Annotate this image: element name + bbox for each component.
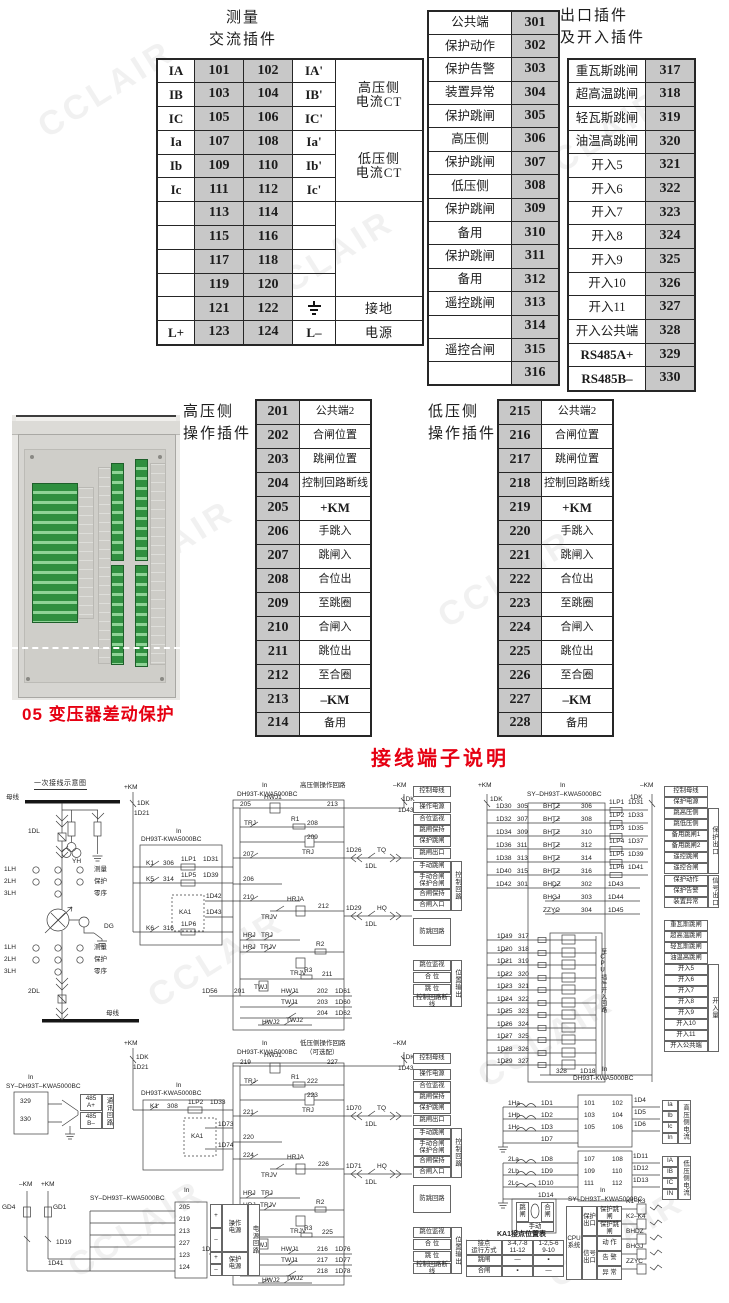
table-cell [157,226,195,250]
table-cell: 114 [244,202,293,226]
table-row: 保护跳闸311 [428,245,559,268]
table-row: 高压侧306 [428,128,559,151]
table-cell: 备用 [542,712,614,736]
table-cell: 318 [646,83,696,107]
table-row: 开入10326 [568,272,695,296]
table-cell: 111 [195,178,244,202]
table-cell: 212 [256,664,300,688]
table-cell: 326 [646,272,696,296]
table-cell: 228 [498,712,542,736]
table-row: 121122接地 [157,297,423,321]
table-cell: 跳位出 [300,640,372,664]
table-cell: 319 [646,106,696,130]
table-row: 215公共端2 [498,400,613,424]
table-row: 216合闸位置 [498,424,613,448]
table-cell: 开入7 [568,201,646,225]
table-cell: IA' [293,59,336,83]
table-cell: 219 [498,496,542,520]
table-cell [293,249,336,273]
table-row: 保护告警303 [428,58,559,81]
table-cell [157,297,195,321]
table-cell: 重瓦斯跳闸 [568,59,646,83]
table-cell: 控制回路断线 [542,472,614,496]
table-cell: 113 [195,202,244,226]
terminal-label-strip [150,463,166,665]
table-cell [293,273,336,297]
table-cell: 112 [244,178,293,202]
lv-plug-title: 低压侧 操作插件 [428,402,506,446]
table-cell: 305 [512,105,560,128]
table-cell: 225 [498,640,542,664]
table-cell: 轻瓦斯跳闸 [568,106,646,130]
table-cell: 至合圈 [542,664,614,688]
terminal-block-large [32,483,78,623]
table-cell: 合位出 [542,568,614,592]
table-cell: 321 [646,154,696,178]
table-row: 203跳闸位置 [256,448,371,472]
table-cell: 306 [512,128,560,151]
table-cell: 保护告警 [428,58,512,81]
lv-operation-plug-table: 215公共端2216合闸位置217跳闸位置218控制回路断线219+KM220手… [497,399,614,737]
table-cell: 120 [244,273,293,297]
table-cell: 121 [195,297,244,321]
table-cell: 215 [498,400,542,424]
table-row: 208合位出 [256,568,371,592]
table-cell: –KM [300,688,372,712]
table-row: 保护跳闸307 [428,151,559,174]
table-cell: 206 [256,520,300,544]
table-cell: 108 [244,130,293,154]
table-cell: 合闸位置 [542,424,614,448]
group-cell: 低压侧 电流CT [336,130,424,201]
table-cell: 备用 [428,268,512,291]
screw [30,455,34,459]
table-cell: 开入9 [568,249,646,273]
table-cell: 210 [256,616,300,640]
table-cell: 合闸入 [542,616,614,640]
hv-operation-plug-table: 201公共端2202合闸位置203跳闸位置204控制回路断线205+KM206手… [255,399,372,737]
table-row: 221跳闸入 [498,544,613,568]
terminal-strip-4 [135,565,148,667]
table-cell: 公共端2 [542,400,614,424]
table-cell: 209 [256,592,300,616]
table-row: 223至跳圈 [498,592,613,616]
table-cell: 110 [244,154,293,178]
table-row: 开入8324 [568,225,695,249]
table-row: 207跳闸入 [256,544,371,568]
table-cell: 104 [244,83,293,107]
table-cell: 320 [646,130,696,154]
table-row: 遥控合闸315 [428,338,559,361]
table-cell: 超高温跳闸 [568,83,646,107]
table-cell: 302 [512,34,560,57]
hv-plug-title: 高压侧 操作插件 [183,402,261,446]
ground-icon [307,301,321,314]
table-cell: 202 [256,424,300,448]
table-row: 202合闸位置 [256,424,371,448]
table-row: 213–KM [256,688,371,712]
table-cell: 开入10 [568,272,646,296]
device-flange [12,421,180,435]
table-cell: 213 [256,688,300,712]
table-cell [157,273,195,297]
table-cell: 221 [498,544,542,568]
table-row: 开入7323 [568,201,695,225]
table-cell: Ic' [293,178,336,202]
table-cell: 118 [244,249,293,273]
terminal-table: 201公共端2202合闸位置203跳闸位置204控制回路断线205+KM206手… [255,399,372,737]
outlet-table-title: 出口插件 及开入插件 [560,6,680,50]
table-cell: 227 [498,688,542,712]
table-row: 225跳位出 [498,640,613,664]
table-row: 210合闸入 [256,616,371,640]
group-cell: 电源 [336,321,424,345]
table-cell: IC' [293,107,336,131]
table-cell: 324 [646,225,696,249]
table-cell: 214 [256,712,300,736]
table-cell: 204 [256,472,300,496]
table-cell: 218 [498,472,542,496]
table-cell: +KM [300,496,372,520]
table-cell [428,362,512,385]
table-row: 保护跳闸305 [428,105,559,128]
table-row: 备用310 [428,222,559,245]
table-cell: 315 [512,338,560,361]
table-row: 轻瓦斯跳闸319 [568,106,695,130]
table-row: 218控制回路断线 [498,472,613,496]
table-row: RS485B–330 [568,367,695,391]
table-row: 204控制回路断线 [256,472,371,496]
table-cell: 合闸入 [300,616,372,640]
table-cell: IC [157,107,195,131]
table-cell: 高压侧 [428,128,512,151]
table-cell [293,202,336,226]
table-cell: 备用 [428,222,512,245]
terminal-label-strip [78,487,94,619]
group-cell: 接地 [336,297,424,321]
page: { "watermark": "CCLAIR", "colors": {"acc… [0,0,729,1298]
screw [158,455,162,459]
table-cell: RS485B– [568,367,646,391]
terminal-label-strip [98,467,111,664]
diagram-title: 接线端子说明 [371,742,509,771]
table-row: 遥控跳闸313 [428,292,559,315]
table-row: 保护动作302 [428,34,559,57]
table-cell: 油温高跳闸 [568,130,646,154]
table-cell: IA [157,59,195,83]
table-row: 201公共端2 [256,400,371,424]
terminal-table: 重瓦斯跳闸317超高温跳闸318轻瓦斯跳闸319油温高跳闸320开入5321开入… [567,58,696,392]
wiring-diagram-svg [0,770,729,1298]
table-cell: 330 [646,367,696,391]
table-cell: 公共端 [428,11,512,34]
table-cell: 合闸位置 [300,424,372,448]
table-cell: 216 [498,424,542,448]
table-cell: 201 [256,400,300,424]
measure-ac-table: IA101102IA'高压侧 电流CTIB103104IB'IC105106IC… [156,58,424,346]
table-cell: 223 [498,592,542,616]
table-row: 217跳闸位置 [498,448,613,472]
table-cell: 跳闸入 [300,544,372,568]
table-cell: 309 [512,198,560,221]
table-row: 公共端301 [428,11,559,34]
terminal-table: 215公共端2216合闸位置217跳闸位置218控制回路断线219+KM220手… [497,399,614,737]
table-cell: 119 [195,273,244,297]
screw [26,677,30,681]
table-cell: 备用 [300,712,372,736]
table-cell: 跳闸入 [542,544,614,568]
table-cell: 310 [512,222,560,245]
table-cell: 303 [512,58,560,81]
table-cell: 322 [646,177,696,201]
table-cell: 遥控合闸 [428,338,512,361]
table-cell: Ic [157,178,195,202]
table-cell: 保护跳闸 [428,151,512,174]
table-cell: 203 [256,448,300,472]
table-cell: 323 [646,201,696,225]
table-cell [157,249,195,273]
table-cell: 106 [244,107,293,131]
table-cell: 307 [512,151,560,174]
table-cell: 至跳圈 [542,592,614,616]
table-cell: 308 [512,175,560,198]
table-cell: 至合圈 [300,664,372,688]
table-row: 226至合圈 [498,664,613,688]
table-cell: 控制回路断线 [300,472,372,496]
terminal-table: IA101102IA'高压侧 电流CTIB103104IB'IC105106IC… [156,58,424,346]
table-row: 备用312 [428,268,559,291]
table-cell: 低压侧 [428,175,512,198]
table-cell: 手跳入 [542,520,614,544]
table-row: 装置异常304 [428,81,559,104]
table-cell: 304 [512,81,560,104]
table-cell: +KM [542,496,614,520]
table-row: 开入6322 [568,177,695,201]
table-cell: 207 [256,544,300,568]
table-cell: 205 [256,496,300,520]
table-cell: 102 [244,59,293,83]
table-cell: 123 [195,321,244,345]
table-cell: 103 [195,83,244,107]
table-row: 214备用 [256,712,371,736]
table-cell: L– [293,321,336,345]
table-row: Ia107108Ia'低压侧 电流CT [157,130,423,154]
wiring-diagram: 一次接线示意图母线1DLYH1LH2LH3LH测量保护零序DG1LH2LH3LH… [0,770,729,1298]
table-cell: 开入公共端 [568,320,646,344]
table-cell: 301 [512,11,560,34]
table-cell: –KM [542,688,614,712]
table-row: 212至合圈 [256,664,371,688]
table-cell: 311 [512,245,560,268]
table-cell: 329 [646,343,696,367]
table-cell: 314 [512,315,560,338]
table-cell: Ib' [293,154,336,178]
table-cell: 122 [244,297,293,321]
table-cell: 开入11 [568,296,646,320]
table-cell: 109 [195,154,244,178]
ground-icon [293,297,336,321]
table-cell: 224 [498,616,542,640]
table-row: L+123124L–电源 [157,321,423,345]
terminal-strip-2 [111,565,124,665]
table-cell: Ib [157,154,195,178]
device-caption: 05 变压器差动保护 [22,700,175,725]
table-row: 220手跳入 [498,520,613,544]
table-cell: 遥控跳闸 [428,292,512,315]
table-row: 314 [428,315,559,338]
table-row: 超高温跳闸318 [568,83,695,107]
table-cell: 226 [498,664,542,688]
table-row: 保护跳闸309 [428,198,559,221]
table-row: 开入公共端328 [568,320,695,344]
group-cell [336,202,424,297]
table-row: 227–KM [498,688,613,712]
table-cell: 107 [195,130,244,154]
table-cell: 保护跳闸 [428,105,512,128]
table-cell: 开入6 [568,177,646,201]
table-row: 211跳位出 [256,640,371,664]
table-row: 209至跳圈 [256,592,371,616]
table-cell: 312 [512,268,560,291]
table-cell: 公共端2 [300,400,372,424]
table-cell: 合位出 [300,568,372,592]
table-cell: 跳闸位置 [300,448,372,472]
table-cell: Ia' [293,130,336,154]
table-cell: IB [157,83,195,107]
table-cell: 手跳入 [300,520,372,544]
table-cell: 保护跳闸 [428,198,512,221]
table-cell: 124 [244,321,293,345]
table-cell: 跳闸位置 [542,448,614,472]
table-row: 316 [428,362,559,385]
table-row: 低压侧308 [428,175,559,198]
table-cell: 328 [646,320,696,344]
table-cell: 保护跳闸 [428,245,512,268]
table-cell: 208 [256,568,300,592]
table-cell: 116 [244,226,293,250]
terminal-strip-3 [135,459,148,561]
table-row: 开入9325 [568,249,695,273]
table-row: 228备用 [498,712,613,736]
table-cell: 220 [498,520,542,544]
table-row: 113114 [157,202,423,226]
table-row: 222合位出 [498,568,613,592]
table-cell: 115 [195,226,244,250]
table-cell: 101 [195,59,244,83]
table-cell: 保护动作 [428,34,512,57]
table-row: 油温高跳闸320 [568,130,695,154]
table-cell: 117 [195,249,244,273]
group-cell: 高压侧 电流CT [336,59,424,130]
photo-dashed-line [12,647,180,649]
screw [160,677,164,681]
table-cell [157,202,195,226]
terminal-strip-1 [111,463,124,561]
table-cell: 至跳圈 [300,592,372,616]
table-cell: 325 [646,249,696,273]
table-row: IA101102IA'高压侧 电流CT [157,59,423,83]
table-row: 206手跳入 [256,520,371,544]
table-cell [293,226,336,250]
table-cell: 317 [646,59,696,83]
table-cell: 217 [498,448,542,472]
table-cell: 222 [498,568,542,592]
signal-output-table: 公共端301保护动作302保护告警303装置异常304保护跳闸305高压侧306… [427,10,560,386]
table-row: 重瓦斯跳闸317 [568,59,695,83]
table-cell [428,315,512,338]
outlet-input-table: 重瓦斯跳闸317超高温跳闸318轻瓦斯跳闸319油温高跳闸320开入5321开入… [567,58,696,392]
table-cell: L+ [157,321,195,345]
table-row: 205+KM [256,496,371,520]
table-cell: 开入5 [568,154,646,178]
table-cell: IB' [293,83,336,107]
table-cell: 313 [512,292,560,315]
table-row: 219+KM [498,496,613,520]
measure-table-title: 测量 交流插件 [188,8,298,52]
table-row: 开入11327 [568,296,695,320]
table-cell: Ia [157,130,195,154]
table-cell: 开入8 [568,225,646,249]
table-cell: 327 [646,296,696,320]
table-cell: 装置异常 [428,81,512,104]
table-cell: 跳位出 [542,640,614,664]
table-cell: 105 [195,107,244,131]
table-row: 开入5321 [568,154,695,178]
table-cell: RS485A+ [568,343,646,367]
table-row: RS485A+329 [568,343,695,367]
terminal-table: 公共端301保护动作302保护告警303装置异常304保护跳闸305高压侧306… [427,10,560,386]
device-rear-photo [12,415,180,700]
table-cell: 211 [256,640,300,664]
table-row: 224合闸入 [498,616,613,640]
table-cell: 316 [512,362,560,385]
